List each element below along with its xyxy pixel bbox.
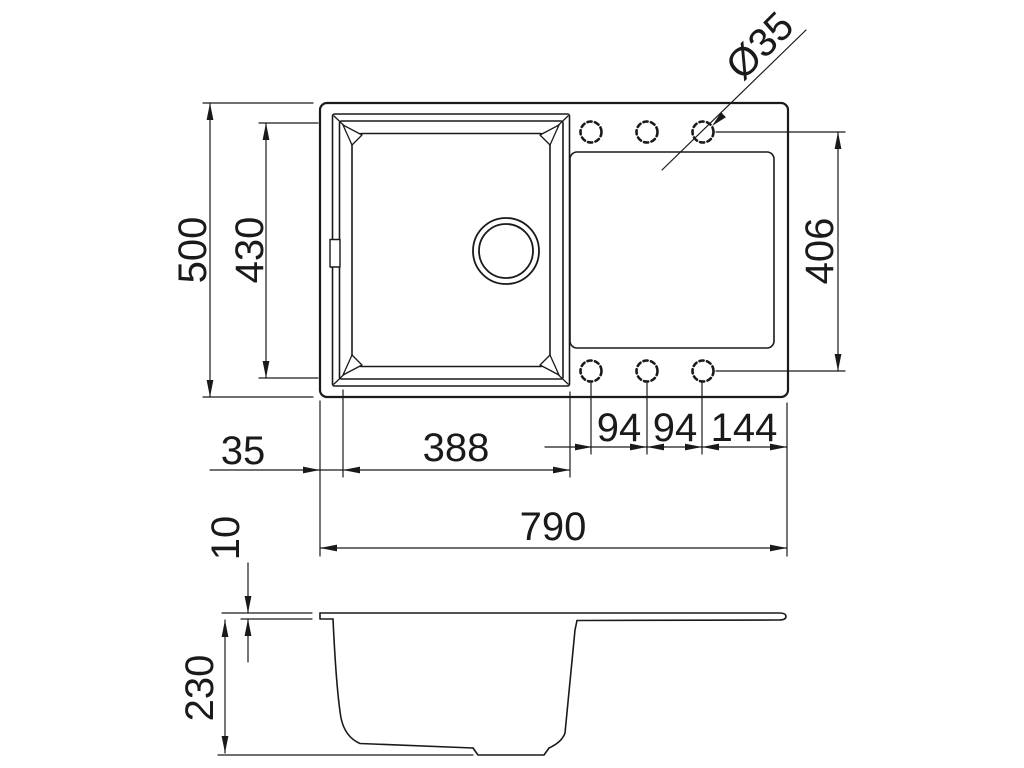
drain-opening bbox=[473, 218, 539, 284]
dim-overall-depth-label: 500 bbox=[171, 217, 215, 284]
dim-overall-width-label: 790 bbox=[520, 505, 587, 549]
tap-hole bbox=[581, 361, 602, 382]
dim-hole-field-depth-label: 406 bbox=[798, 218, 842, 285]
bowl bbox=[330, 114, 570, 386]
dim-left-offset-label: 35 bbox=[221, 429, 266, 473]
sink-dimension-drawing: 500 430 406 Ø35 35 388 94 94 144 790 10 … bbox=[0, 0, 1024, 768]
dim-hole-pitch-2-label: 94 bbox=[653, 406, 698, 450]
sink-technical-drawing-page: 500 430 406 Ø35 35 388 94 94 144 790 10 … bbox=[0, 0, 1024, 768]
side-left-rim bbox=[320, 613, 333, 619]
dim-bowl-depth-label: 430 bbox=[228, 217, 272, 284]
side-bowl-right-wall bbox=[549, 621, 577, 749]
side-view bbox=[320, 613, 786, 755]
dim-hole-pitch-3-label: 144 bbox=[711, 406, 778, 450]
dim-bowl-width-label: 388 bbox=[423, 426, 490, 470]
dim-rim-thickness-label: 10 bbox=[204, 516, 248, 561]
drainboard bbox=[570, 152, 774, 348]
side-top-surface bbox=[320, 613, 786, 621]
bowl-bottom bbox=[352, 134, 550, 367]
tap-hole bbox=[637, 122, 658, 143]
bowl-rim-outer bbox=[333, 114, 570, 386]
dim-bowl-height-label: 230 bbox=[178, 655, 222, 722]
tap-hole bbox=[693, 361, 714, 382]
tap-hole bbox=[693, 122, 714, 143]
overflow-slot bbox=[330, 240, 340, 268]
dimension-lines bbox=[210, 30, 838, 753]
side-drain-outlet bbox=[473, 748, 549, 755]
dim-hole-diameter-label: Ø35 bbox=[718, 4, 803, 89]
bowl-rim-middle bbox=[340, 121, 564, 379]
tap-holes bbox=[581, 122, 714, 382]
dim-hole-pitch-1-label: 94 bbox=[597, 406, 642, 450]
side-bowl-left-wall bbox=[333, 619, 473, 748]
sink-outline bbox=[320, 103, 788, 397]
tap-hole bbox=[581, 122, 602, 143]
plan-view bbox=[320, 103, 788, 397]
tap-hole bbox=[637, 361, 658, 382]
